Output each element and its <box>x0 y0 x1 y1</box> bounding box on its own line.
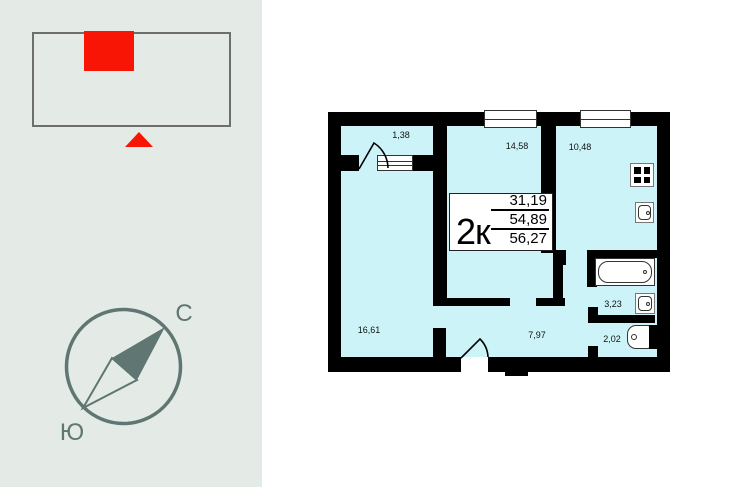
room-area-label: 1,38 <box>392 130 410 140</box>
area-stack: 31,19 54,89 56,27 <box>491 192 549 247</box>
usable-area-value: 54,89 <box>491 211 549 230</box>
floor-plan: 1,38 14,58 10,48 16,61 7,97 3,23 2,02 2к… <box>328 112 670 372</box>
room-area-label: 3,23 <box>604 299 622 309</box>
location-panel: С Ю <box>0 0 262 487</box>
apartment-position-marker <box>84 31 134 71</box>
plan-panel: 1,38 14,58 10,48 16,61 7,97 3,23 2,02 2к… <box>262 0 750 487</box>
apartment-info-box: 2к 31,19 54,89 56,27 <box>449 193 553 251</box>
living-area-value: 31,19 <box>491 192 549 211</box>
room-area-label: 7,97 <box>528 330 546 340</box>
compass-north-label: С <box>175 300 192 327</box>
room-area-label: 16,61 <box>358 325 381 335</box>
room-area-label: 14,58 <box>506 141 529 151</box>
rooms-count-label: 2к <box>456 217 490 247</box>
door-arc-icon <box>359 143 388 169</box>
compass-south-label: Ю <box>60 419 84 446</box>
floor-plan-viewer: С Ю <box>0 0 750 487</box>
total-area-value: 56,27 <box>491 230 549 247</box>
compass-icon: С Ю <box>0 0 262 487</box>
door-arc-icon <box>461 339 488 358</box>
room-area-label: 10,48 <box>569 142 592 152</box>
room-area-label: 2,02 <box>603 334 621 344</box>
